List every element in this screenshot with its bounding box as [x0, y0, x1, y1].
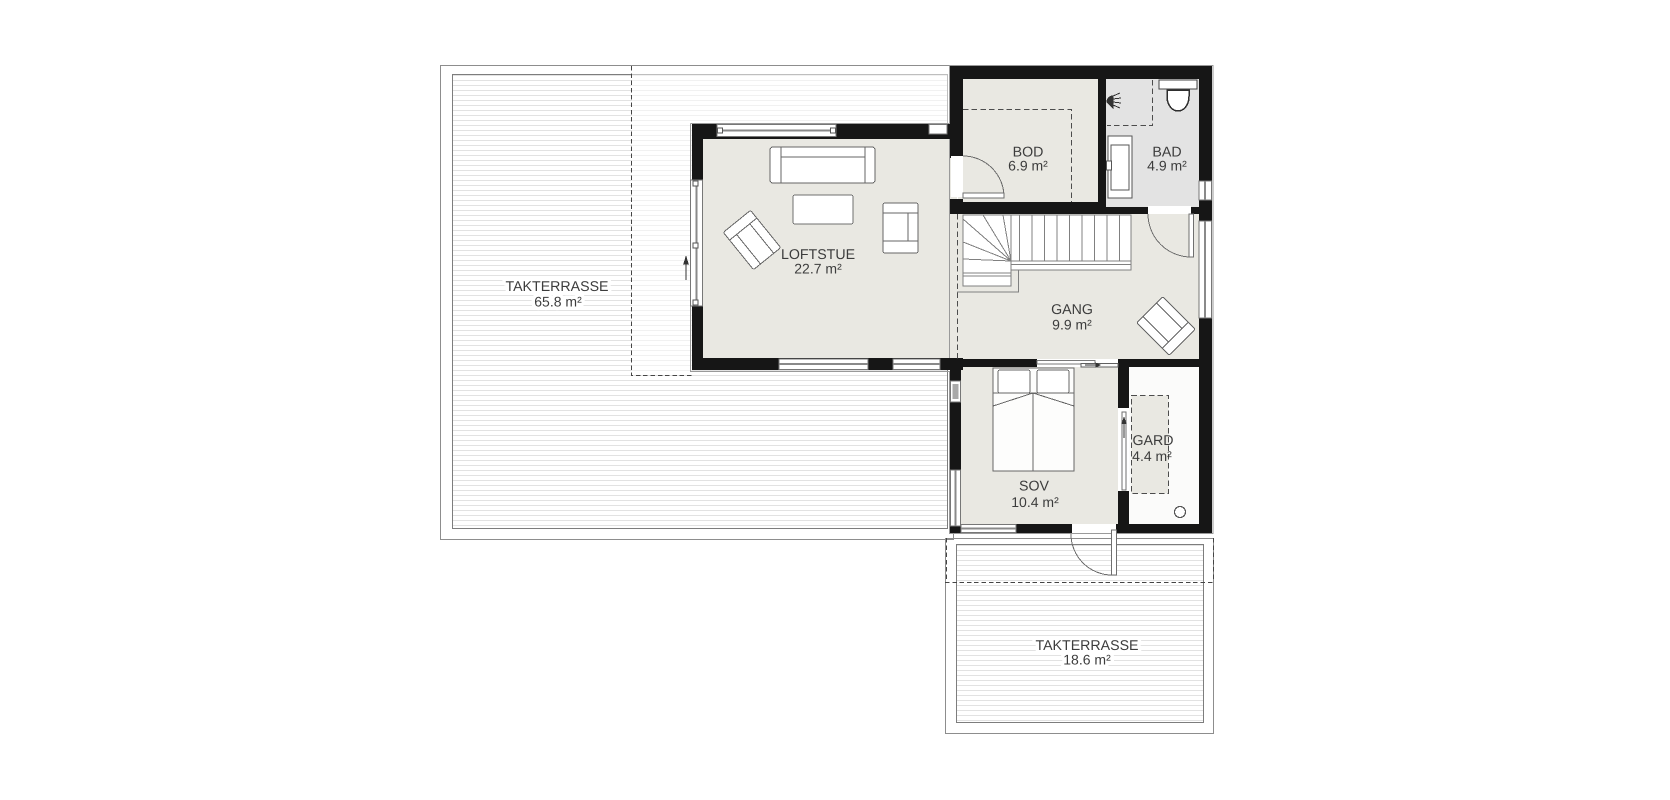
svg-text:22.7 m²: 22.7 m²	[794, 261, 842, 277]
svg-text:9.9 m²: 9.9 m²	[1052, 317, 1092, 333]
svg-text:SOV: SOV	[1019, 479, 1049, 495]
svg-text:6.9 m²: 6.9 m²	[1008, 158, 1048, 174]
svg-text:4.9 m²: 4.9 m²	[1147, 158, 1187, 174]
svg-text:10.4 m²: 10.4 m²	[1011, 494, 1059, 510]
svg-text:4.4 m²: 4.4 m²	[1132, 448, 1172, 464]
svg-text:GARD: GARD	[1133, 433, 1174, 449]
svg-text:65.8 m²: 65.8 m²	[534, 294, 582, 310]
svg-text:18.6 m²: 18.6 m²	[1063, 652, 1111, 668]
